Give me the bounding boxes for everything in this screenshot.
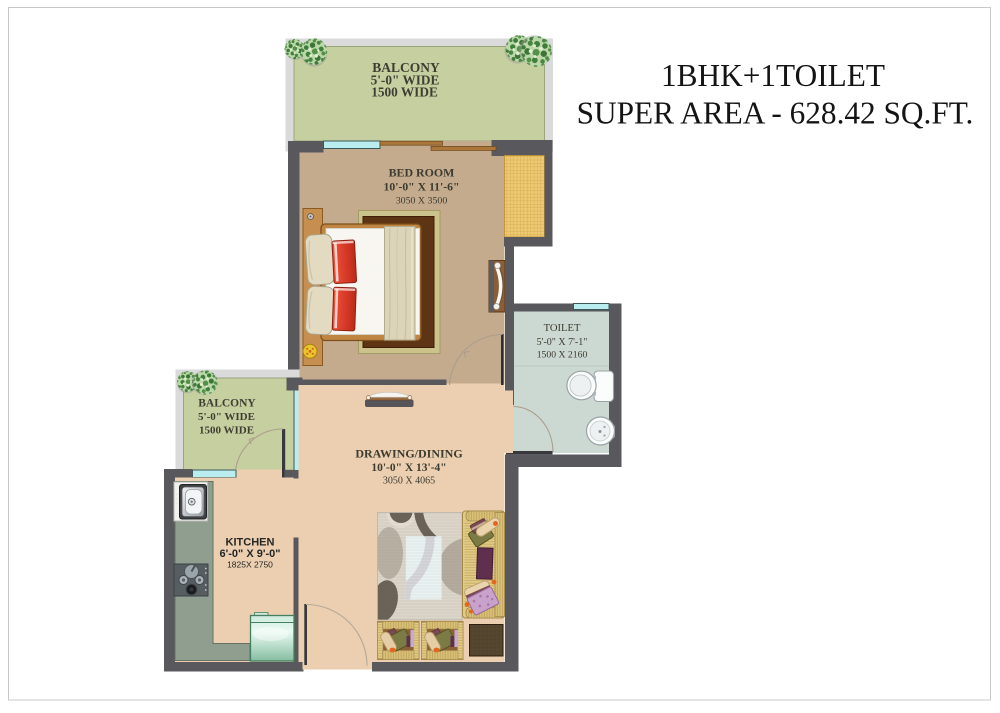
svg-text:1BHK+1TOILET: 1BHK+1TOILET xyxy=(661,58,885,93)
svg-text:5'-0" WIDE: 5'-0" WIDE xyxy=(198,411,255,423)
svg-text:6'-0" X 9'-0": 6'-0" X 9'-0" xyxy=(220,548,281,560)
svg-text:BED ROOM: BED ROOM xyxy=(389,166,455,180)
svg-text:DRAWING/DINING: DRAWING/DINING xyxy=(355,447,462,461)
svg-text:TOILET: TOILET xyxy=(544,323,581,334)
svg-text:3050 X 4065: 3050 X 4065 xyxy=(383,476,435,487)
svg-text:1500 WIDE: 1500 WIDE xyxy=(199,425,254,437)
svg-text:KITCHEN: KITCHEN xyxy=(226,537,275,549)
svg-text:1500 WIDE: 1500 WIDE xyxy=(371,85,438,100)
svg-text:1825X 2750: 1825X 2750 xyxy=(227,560,273,570)
svg-text:1500 X 2160: 1500 X 2160 xyxy=(537,350,588,361)
svg-text:BALCONY: BALCONY xyxy=(198,398,256,410)
svg-text:5'-0" X 7'-1": 5'-0" X 7'-1" xyxy=(537,337,588,348)
svg-text:10'-0" X 11'-6": 10'-0" X 11'-6" xyxy=(384,181,460,194)
svg-text:SUPER AREA - 628.42 SQ.FT.: SUPER AREA - 628.42 SQ.FT. xyxy=(577,96,974,131)
svg-text:10'-0" X 13'-4": 10'-0" X 13'-4" xyxy=(371,462,446,474)
svg-text:3050 X 3500: 3050 X 3500 xyxy=(396,196,448,207)
